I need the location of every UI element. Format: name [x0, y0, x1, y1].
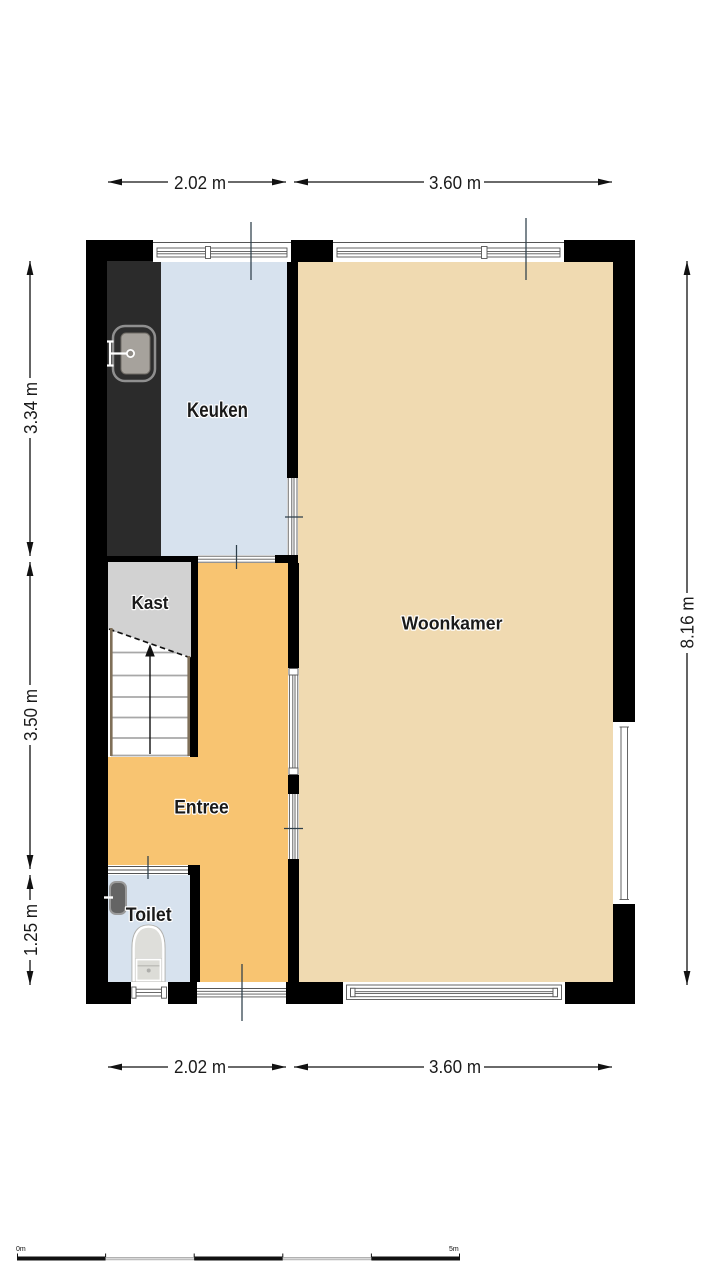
svg-text:1.25 m: 1.25 m: [21, 904, 41, 956]
svg-text:2.02 m: 2.02 m: [174, 173, 226, 193]
svg-text:Keuken: Keuken: [187, 398, 248, 422]
svg-text:3.60 m: 3.60 m: [429, 173, 481, 193]
svg-text:2.02 m: 2.02 m: [174, 1057, 226, 1077]
svg-text:Toilet: Toilet: [126, 905, 173, 926]
svg-text:3.50 m: 3.50 m: [21, 689, 41, 741]
svg-text:Woonkamer: Woonkamer: [402, 613, 503, 633]
svg-text:8.16 m: 8.16 m: [677, 597, 697, 649]
svg-text:Entree: Entree: [174, 797, 229, 818]
svg-text:3.60 m: 3.60 m: [429, 1057, 481, 1077]
svg-text:3.34 m: 3.34 m: [21, 382, 41, 434]
svg-text:Kast: Kast: [132, 592, 169, 613]
